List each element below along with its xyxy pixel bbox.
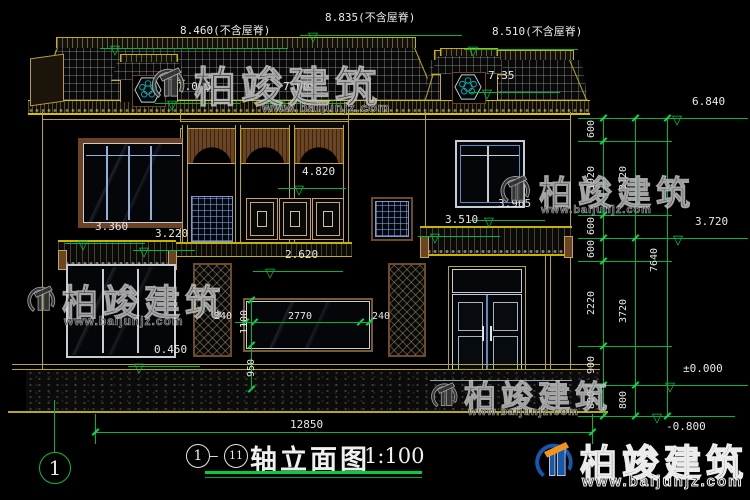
level-triangle-icon: ▽ bbox=[78, 239, 88, 252]
plinth-top-line-a bbox=[12, 364, 600, 365]
level-triangle-icon: ▽ bbox=[134, 362, 144, 375]
door-panel bbox=[458, 302, 483, 331]
first-floor-center-window bbox=[243, 298, 373, 352]
dim-chain-line-b bbox=[635, 118, 636, 416]
left-wall-edge bbox=[42, 112, 43, 372]
level-marker-roof-left: 8.460(不含屋脊) ▽ bbox=[100, 21, 288, 49]
level-marker-2620: 2.620 ▽ bbox=[253, 244, 343, 272]
second-floor-lattice-window bbox=[371, 197, 413, 241]
level-triangle-icon: ▽ bbox=[430, 232, 440, 245]
level-text: 2.620 bbox=[285, 248, 318, 261]
level-triangle-icon: ▽ bbox=[139, 246, 149, 259]
canopy-bracket bbox=[564, 236, 573, 258]
level-triangle-icon: ▽ bbox=[652, 412, 662, 425]
balcony-railing-panel bbox=[312, 198, 344, 240]
brand-logo-icon bbox=[497, 168, 535, 210]
window-dim-line bbox=[235, 322, 372, 323]
level-text: 0.450 bbox=[154, 343, 187, 356]
overall-dim-line bbox=[95, 432, 592, 433]
watermark-top-center: 柏竣建筑 www.baijunjz.com bbox=[148, 54, 408, 126]
cad-elevation-drawing: 8.460(不含屋脊) ▽ 8.835(不含屋脊) ▽ 8.510(不含屋脊) … bbox=[0, 0, 750, 500]
door-panel bbox=[493, 336, 518, 371]
title-axis-end-bubble: 11 bbox=[224, 444, 248, 468]
level-text: 6.840 bbox=[692, 95, 725, 108]
gable-end-ornament bbox=[30, 54, 64, 107]
level-marker-4820: 4.820 ▽ bbox=[278, 161, 346, 189]
veranda-column bbox=[235, 125, 241, 243]
axis-bubble-leader bbox=[54, 400, 55, 452]
door-panel bbox=[458, 336, 483, 371]
level-text: 4.820 bbox=[302, 165, 335, 178]
canopy-bracket bbox=[420, 236, 429, 258]
level-text: 8.835(不含屋脊) bbox=[325, 9, 415, 25]
level-triangle-icon: ▽ bbox=[110, 44, 120, 57]
level-text: 3.510 bbox=[445, 213, 478, 226]
level-marker-zero: ±0.000 ▽ bbox=[645, 358, 748, 386]
watermark-url: www.baijunjz.com bbox=[541, 204, 652, 216]
veranda-lattice-panel-blue bbox=[191, 196, 233, 242]
level-triangle-icon: ▽ bbox=[673, 234, 683, 247]
dim-text-2770: 2770 bbox=[288, 311, 312, 322]
dim-label-600: 600 bbox=[586, 107, 598, 151]
level-marker-735: 7.35 ▽ bbox=[470, 65, 560, 93]
balcony-railing-panel bbox=[279, 198, 311, 240]
brand-logo-icon bbox=[148, 60, 190, 106]
door-handle bbox=[490, 326, 492, 341]
watermark-right-middle: 柏竣建筑 www.baijunjz.com bbox=[497, 164, 707, 220]
right-roof-eave bbox=[416, 100, 590, 115]
level-triangle-icon: ▽ bbox=[672, 114, 682, 127]
veranda-arch-bay-2 bbox=[237, 128, 293, 164]
entrance-double-door bbox=[452, 294, 522, 378]
door-pilaster-a bbox=[545, 255, 546, 372]
dim-label-600: 600 bbox=[586, 227, 598, 271]
brand-logo-icon bbox=[428, 376, 462, 414]
dim-chain-line-c bbox=[667, 118, 668, 416]
title-underline-thick bbox=[205, 471, 422, 474]
brand-logo-icon bbox=[24, 279, 60, 319]
level-marker-3510: 3.510 ▽ bbox=[418, 209, 500, 237]
overall-dim-text: 12850 bbox=[290, 418, 323, 431]
door-panel bbox=[493, 302, 518, 331]
veranda-arch-bay-1 bbox=[185, 128, 239, 164]
veranda-arch-bay-3 bbox=[291, 128, 347, 164]
watermark-url: www.baijunjz.com bbox=[582, 473, 743, 490]
level-text: 8.510(不含屋脊) bbox=[492, 23, 582, 39]
first-floor-lattice-window-right bbox=[388, 263, 426, 357]
watermark-url: www.baijunjz.com bbox=[262, 100, 390, 115]
watermark-url: www.baijunjz.com bbox=[64, 314, 184, 328]
watermark-logo-bottom-right: 柏竣建筑 www.baijunjz.com bbox=[530, 433, 748, 497]
level-triangle-icon: ▽ bbox=[482, 88, 492, 101]
entrance-transom bbox=[452, 269, 522, 293]
dim-text-240: 240 bbox=[372, 311, 390, 322]
level-triangle-icon: ▽ bbox=[294, 184, 304, 197]
dim-label-950: 950 bbox=[246, 346, 258, 390]
level-marker-0450: 0.450 ▽ bbox=[128, 339, 200, 367]
watermark-left-middle: 柏竣建筑 www.baijunjz.com bbox=[24, 274, 244, 332]
level-text: 7.35 bbox=[488, 69, 515, 82]
level-text: 3.360 bbox=[95, 220, 128, 233]
level-marker-3220: 3.220 ▽ bbox=[133, 223, 195, 251]
brand-logo-icon bbox=[530, 435, 580, 491]
title-dash: — bbox=[210, 449, 218, 464]
axis-bubble: 1 bbox=[39, 452, 71, 484]
title-axis-start-bubble: 1 bbox=[186, 444, 210, 468]
level-text: 3.220 bbox=[155, 227, 188, 240]
balcony-railing-panel bbox=[246, 198, 278, 240]
door-pilaster-b bbox=[550, 255, 551, 372]
watermark-url: www.baijunjz.com bbox=[468, 406, 579, 418]
level-text: -0.800 bbox=[666, 420, 706, 433]
drawing-scale: 1:100 bbox=[364, 444, 425, 468]
second-floor-left-window bbox=[78, 138, 188, 228]
door-handle bbox=[482, 326, 484, 341]
level-text: 8.460(不含屋脊) bbox=[180, 22, 270, 38]
dim-label-7640: 7640 bbox=[649, 238, 661, 282]
level-triangle-icon: ▽ bbox=[265, 267, 275, 280]
level-text: ±0.000 bbox=[683, 362, 723, 375]
level-triangle-icon: ▽ bbox=[308, 31, 318, 44]
level-marker-roof-right: 8.510(不含屋脊) ▽ bbox=[464, 22, 578, 50]
title-underline-thin bbox=[205, 477, 422, 478]
dim-label-3720: 3720 bbox=[618, 289, 630, 333]
dim-label-2220: 2220 bbox=[586, 281, 598, 325]
level-triangle-icon: ▽ bbox=[468, 45, 478, 58]
watermark-bottom-center: 柏竣建筑 www.baijunjz.com bbox=[428, 370, 623, 422]
level-marker-6840: 6.840 ▽ bbox=[650, 91, 748, 119]
level-marker-roof-total: 8.835(不含屋脊) ▽ bbox=[300, 8, 462, 36]
